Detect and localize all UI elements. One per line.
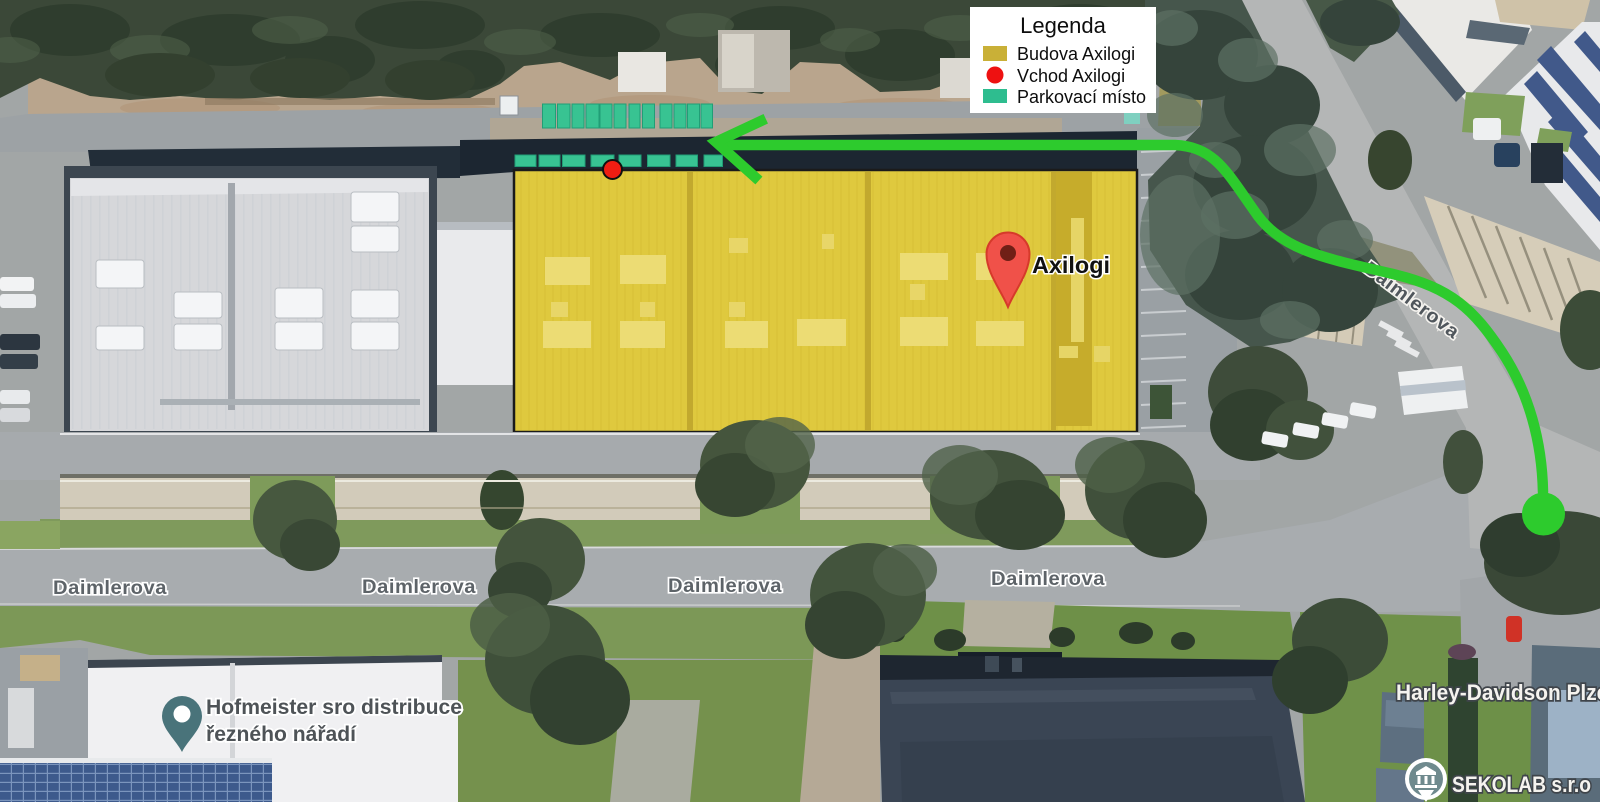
svg-text:Daimlerova: Daimlerova xyxy=(668,576,782,597)
svg-text:Budova Axilogi: Budova Axilogi xyxy=(1017,44,1135,64)
svg-text:SEKOLAB s.r.o: SEKOLAB s.r.o xyxy=(1452,772,1591,797)
svg-text:Vchod Axilogi: Vchod Axilogi xyxy=(1017,66,1125,86)
svg-text:Axilogi: Axilogi xyxy=(1032,252,1110,278)
svg-text:Parkovací místo: Parkovací místo xyxy=(1017,87,1146,107)
svg-text:Daimlerova: Daimlerova xyxy=(362,577,476,598)
svg-text:řezného nářadí: řezného nářadí xyxy=(206,723,357,746)
svg-text:Daimlerova: Daimlerova xyxy=(53,578,167,599)
svg-text:Harley-Davidson Plzeň: Harley-Davidson Plzeň xyxy=(1396,680,1600,705)
svg-text:Daimlerova: Daimlerova xyxy=(991,569,1105,590)
svg-text:Legenda: Legenda xyxy=(1020,13,1106,38)
svg-text:Hofmeister sro distribuce: Hofmeister sro distribuce xyxy=(206,696,462,719)
